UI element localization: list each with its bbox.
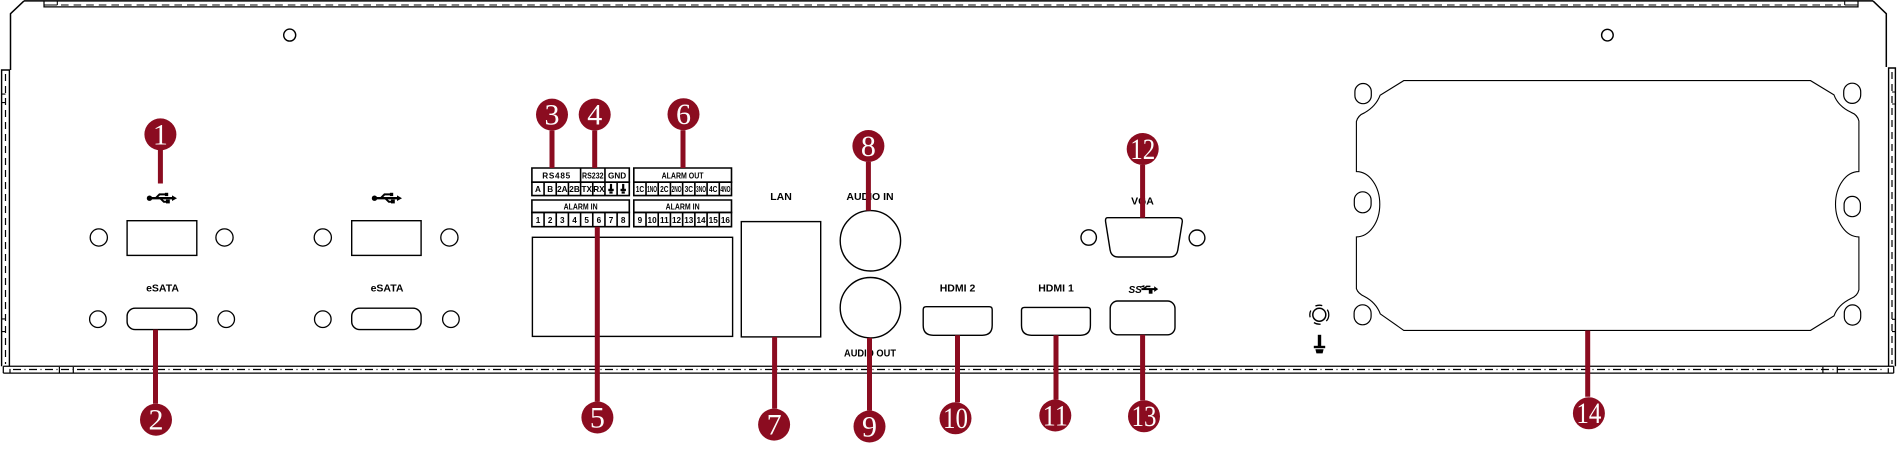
svg-text:4: 4 (587, 99, 602, 132)
svg-text:2NO: 2NO (672, 185, 682, 194)
svg-text:13: 13 (684, 216, 694, 225)
svg-text:12: 12 (1130, 133, 1155, 166)
svg-text:6: 6 (597, 216, 602, 225)
svg-text:RX: RX (593, 185, 605, 194)
svg-text:7: 7 (767, 409, 782, 442)
svg-text:6: 6 (676, 98, 691, 131)
svg-text:12: 12 (672, 216, 682, 225)
svg-text:2: 2 (149, 404, 164, 437)
svg-text:2C: 2C (660, 185, 669, 194)
svg-text:ALARM IN: ALARM IN (666, 203, 700, 212)
svg-text:11: 11 (1043, 399, 1068, 432)
svg-text:4C: 4C (709, 185, 718, 194)
svg-text:5: 5 (590, 401, 605, 434)
svg-text:HDMI 1: HDMI 1 (1038, 283, 1074, 295)
svg-text:2A: 2A (557, 185, 568, 194)
svg-text:10: 10 (943, 402, 968, 435)
svg-text:3C: 3C (685, 185, 694, 194)
svg-text:9: 9 (638, 216, 643, 225)
svg-text:9: 9 (862, 410, 877, 443)
svg-text:B: B (547, 185, 553, 194)
svg-text:ALARM IN: ALARM IN (564, 203, 598, 212)
svg-text:2B: 2B (569, 185, 580, 194)
svg-text:7: 7 (609, 216, 614, 225)
svg-text:1C: 1C (636, 185, 645, 194)
svg-text:4: 4 (572, 216, 577, 225)
svg-text:16: 16 (721, 216, 731, 225)
svg-text:10: 10 (648, 216, 658, 225)
svg-text:11: 11 (660, 216, 669, 225)
svg-text:5: 5 (584, 216, 589, 225)
svg-text:GND: GND (608, 171, 626, 180)
svg-text:14: 14 (1576, 397, 1601, 430)
svg-text:1NO: 1NO (647, 185, 657, 194)
svg-text:RS485: RS485 (542, 171, 570, 180)
svg-text:4NO: 4NO (720, 185, 730, 194)
svg-text:1: 1 (153, 118, 168, 151)
svg-text:13: 13 (1132, 400, 1157, 433)
svg-text:3NO: 3NO (696, 185, 706, 194)
svg-text:SS: SS (1129, 285, 1143, 296)
svg-text:RS232: RS232 (582, 171, 604, 180)
svg-text:LAN: LAN (770, 191, 792, 203)
svg-text:15: 15 (709, 216, 719, 225)
svg-text:8: 8 (621, 216, 626, 225)
svg-text:eSATA: eSATA (146, 283, 179, 295)
svg-text:1: 1 (536, 216, 541, 225)
svg-text:A: A (535, 185, 541, 194)
svg-text:14: 14 (696, 216, 706, 225)
svg-text:HDMI 2: HDMI 2 (940, 283, 976, 295)
svg-text:8: 8 (861, 130, 876, 163)
svg-text:3: 3 (545, 99, 560, 132)
svg-text:2: 2 (548, 216, 553, 225)
svg-text:eSATA: eSATA (371, 283, 404, 295)
svg-text:ALARM OUT: ALARM OUT (662, 171, 704, 180)
svg-text:3: 3 (560, 216, 565, 225)
svg-text:TX: TX (581, 185, 592, 194)
